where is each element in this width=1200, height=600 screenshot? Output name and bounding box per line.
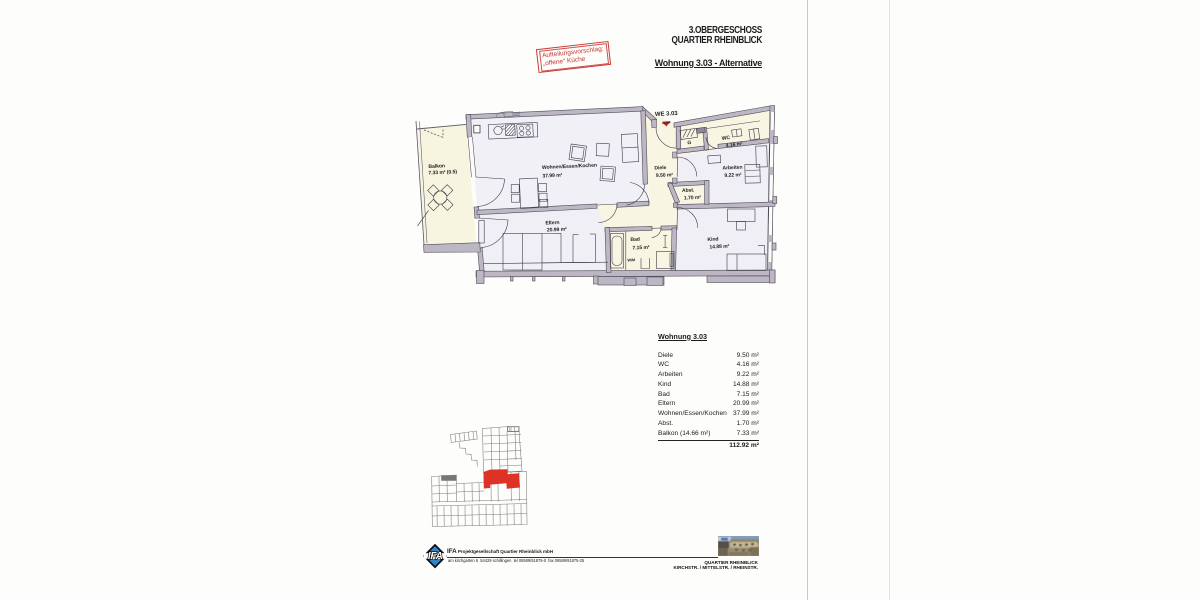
svg-text:Kind: Kind <box>707 237 718 243</box>
svg-text:Eltern: Eltern <box>545 220 559 227</box>
svg-text:9.50 m²: 9.50 m² <box>656 172 674 179</box>
svg-text:Abst.: Abst. <box>682 187 695 194</box>
svg-text:7.33 m² (0.5): 7.33 m² (0.5) <box>428 169 457 176</box>
svg-text:1.70 m²: 1.70 m² <box>684 195 702 202</box>
svg-text:Diele: Diele <box>654 165 666 172</box>
svg-text:7.15 m²: 7.15 m² <box>632 245 650 252</box>
svg-text:37.99 m²: 37.99 m² <box>542 173 562 180</box>
svg-text:Bad: Bad <box>630 237 640 243</box>
svg-text:Arbeiten: Arbeiten <box>722 165 742 172</box>
svg-text:9.22 m²: 9.22 m² <box>724 172 742 179</box>
svg-text:W/M: W/M <box>627 258 635 262</box>
svg-text:20.99 m²: 20.99 m² <box>547 227 567 234</box>
svg-text:14.88 m²: 14.88 m² <box>709 244 729 251</box>
svg-text:WC: WC <box>721 135 730 142</box>
svg-text:WE 3.03: WE 3.03 <box>655 111 679 118</box>
svg-text:IFA: IFA <box>427 551 442 562</box>
